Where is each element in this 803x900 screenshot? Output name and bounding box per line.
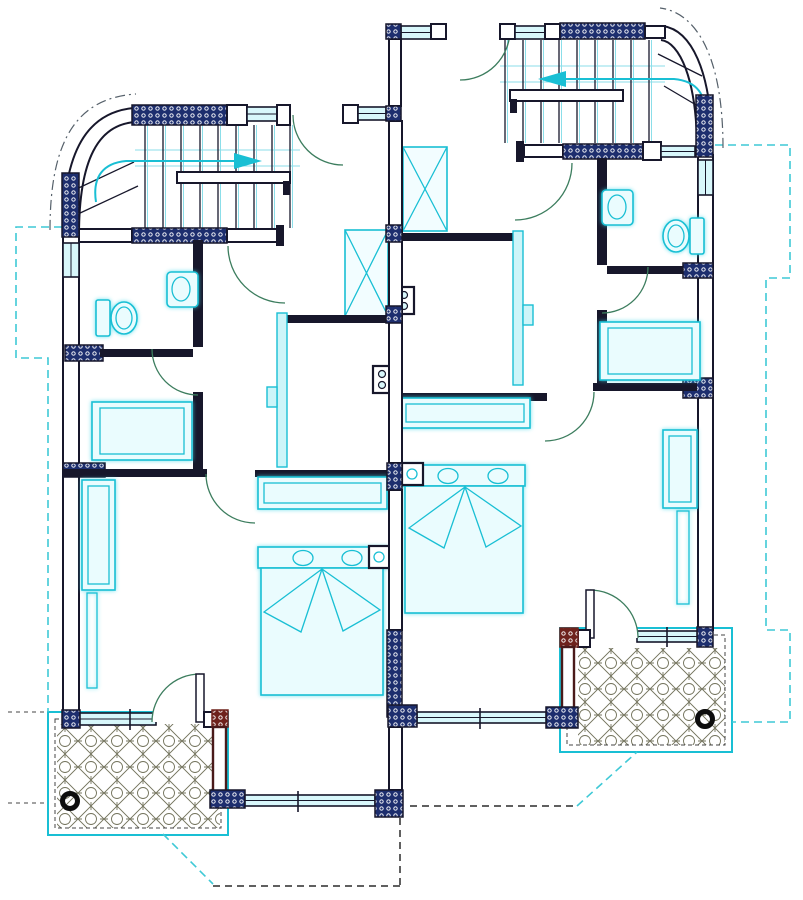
window bbox=[661, 146, 695, 157]
door-arc bbox=[293, 115, 343, 165]
left-unit-top-wall bbox=[132, 105, 386, 165]
toilet-icon bbox=[96, 300, 137, 336]
window bbox=[417, 708, 546, 729]
pier bbox=[696, 95, 713, 157]
wardrobe-left bbox=[82, 480, 115, 688]
sliding-partition-right bbox=[513, 231, 533, 385]
double-bed-right bbox=[402, 465, 525, 613]
pier bbox=[386, 306, 402, 323]
dresser-left bbox=[92, 402, 192, 460]
pier bbox=[375, 790, 403, 817]
mid-wall-left bbox=[255, 470, 388, 477]
pier bbox=[386, 106, 401, 121]
door-arc bbox=[228, 246, 285, 303]
sliding-partition-left bbox=[267, 313, 287, 467]
corridor-wall-left bbox=[280, 315, 390, 323]
pier bbox=[387, 463, 402, 490]
toilet-icon bbox=[663, 218, 704, 254]
pier bbox=[683, 263, 713, 278]
corridor-wall-right bbox=[402, 233, 513, 241]
patio-side-wall-left bbox=[213, 727, 226, 792]
desk-left bbox=[258, 477, 387, 509]
nightstand-left bbox=[369, 546, 390, 568]
red-pier bbox=[212, 710, 228, 727]
right-unit bbox=[395, 23, 713, 729]
stair-landing-wall-right bbox=[510, 90, 623, 101]
staircase-left bbox=[70, 125, 300, 228]
door-arc bbox=[515, 163, 572, 220]
stair-landing-wall-left bbox=[177, 172, 290, 183]
window bbox=[245, 791, 375, 812]
wash-basin-icon bbox=[602, 190, 633, 225]
door-arc bbox=[206, 474, 255, 523]
wardrobe-right bbox=[663, 430, 697, 604]
pier bbox=[65, 345, 103, 361]
floor-plan bbox=[0, 0, 803, 900]
staircase-right bbox=[500, 40, 708, 143]
window bbox=[401, 26, 431, 39]
floor-plan-canvas bbox=[0, 0, 803, 900]
mid-wall-right bbox=[593, 383, 697, 391]
door-leaf bbox=[196, 674, 204, 722]
nightstand-right bbox=[402, 463, 423, 485]
pier bbox=[62, 173, 79, 237]
desk-right bbox=[400, 398, 530, 428]
pier bbox=[388, 705, 417, 727]
mid-wall-left bbox=[63, 469, 207, 477]
pier bbox=[387, 630, 402, 717]
service-shaft-right bbox=[403, 147, 447, 231]
door-arc bbox=[545, 392, 594, 441]
window bbox=[637, 627, 697, 647]
window bbox=[247, 107, 277, 121]
window bbox=[698, 160, 713, 195]
patio-right-tiles bbox=[578, 648, 725, 745]
left-unit bbox=[62, 105, 392, 812]
service-shaft-left bbox=[345, 230, 388, 316]
window bbox=[515, 26, 545, 39]
patio-side-wall-right bbox=[562, 647, 574, 709]
pier bbox=[386, 24, 401, 39]
red-pier bbox=[560, 628, 578, 647]
window bbox=[63, 243, 79, 277]
wash-basin-icon bbox=[167, 272, 198, 307]
pier bbox=[386, 225, 402, 242]
double-bed-left bbox=[258, 547, 388, 695]
window bbox=[358, 107, 386, 120]
patio-left-tiles bbox=[57, 724, 220, 828]
patio-left bbox=[48, 712, 228, 835]
right-unit-top-wall bbox=[401, 23, 665, 80]
dresser-right bbox=[600, 322, 700, 380]
